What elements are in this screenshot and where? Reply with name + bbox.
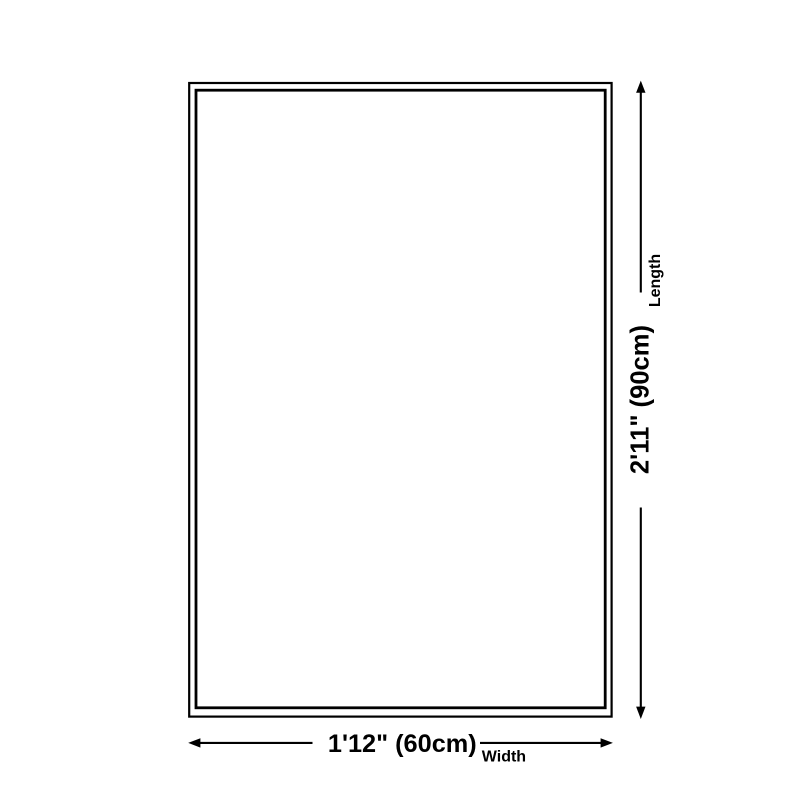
svg-text:Width: Width [482,748,526,765]
svg-text:1'12" (60cm): 1'12" (60cm) [328,730,477,758]
svg-text:Length: Length [647,254,664,307]
svg-text:2'11" (90cm): 2'11" (90cm) [626,325,654,474]
